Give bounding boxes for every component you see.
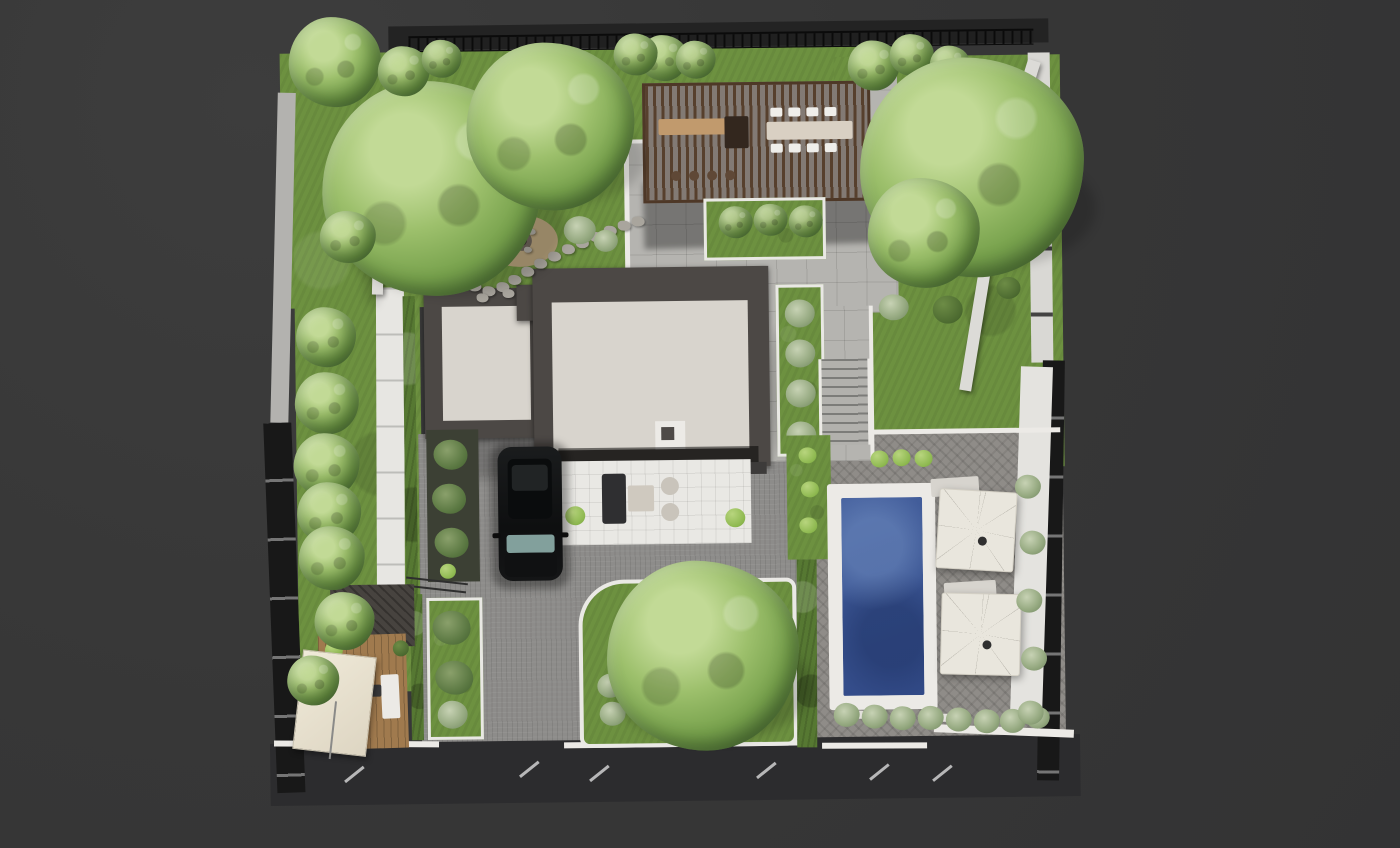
bar-stool (689, 171, 699, 181)
conifer (434, 528, 468, 558)
left-wall-concrete (270, 93, 295, 423)
garden-stairs (821, 359, 868, 446)
conifer (433, 440, 467, 470)
pool-water (841, 497, 924, 696)
patio-coffee-table (628, 485, 654, 511)
main-roof-top (552, 300, 750, 450)
car-sunroof (512, 465, 548, 491)
pool-deck-bush (870, 450, 888, 467)
pool-deck-bush (914, 450, 932, 467)
patio-chair (661, 477, 679, 495)
dining-chair (807, 143, 819, 152)
dining-chair (806, 107, 818, 116)
bar-stool (725, 170, 735, 180)
curb-bottom-right (822, 742, 927, 748)
patio-chair (661, 503, 679, 521)
pergola-roof (642, 81, 871, 204)
parasol (940, 592, 1022, 676)
stepping-stone (477, 293, 489, 302)
deck-plant (393, 640, 409, 656)
bar-stool (707, 170, 717, 180)
car-hood (505, 552, 557, 577)
pergola-kitchen-island (724, 116, 748, 148)
stepping-stone (562, 244, 575, 254)
aerial-render-stage (0, 0, 1400, 848)
garage-roof-top (442, 306, 531, 421)
dining-chair (824, 107, 836, 116)
stepping-stone (632, 216, 645, 226)
stepping-stone (618, 221, 631, 231)
deck-seat (380, 674, 400, 719)
pool-hedge (797, 559, 818, 747)
dining-chair (789, 143, 801, 152)
conifer-small (440, 564, 456, 579)
conifer (435, 660, 473, 694)
chimney-vent (661, 427, 674, 440)
site (273, 28, 1074, 798)
dining-table (766, 121, 852, 140)
dining-chair (788, 107, 800, 116)
car-mirror (492, 533, 500, 538)
poolside-bush (801, 481, 819, 497)
conifer (432, 484, 466, 514)
bar-stool (671, 171, 681, 181)
pool-deck-bush (892, 449, 910, 466)
stepping-stone (502, 289, 514, 298)
dining-chair (770, 108, 782, 117)
conifer (432, 611, 470, 645)
dining-chair (771, 144, 783, 153)
patio-sofa (602, 474, 627, 524)
car-mirror (560, 532, 568, 537)
car-windshield (506, 534, 554, 553)
parasol (935, 488, 1017, 572)
patio (561, 459, 752, 545)
walkway-steps (376, 287, 405, 619)
patio-bush (725, 508, 745, 527)
dining-chair (825, 143, 837, 152)
